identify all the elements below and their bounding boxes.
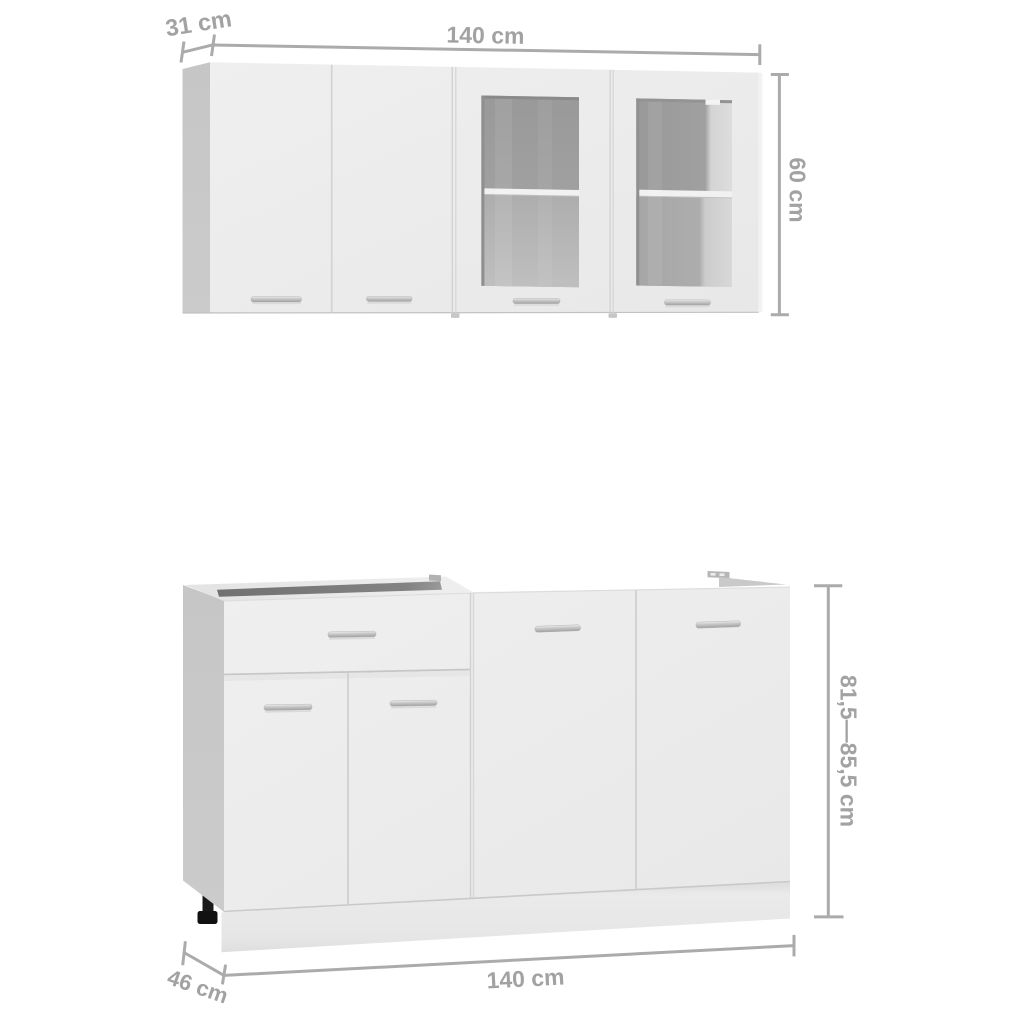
svg-text:60 cm: 60 cm	[785, 157, 811, 222]
svg-text:140 cm: 140 cm	[486, 963, 565, 993]
svg-text:81,5—85,5 cm: 81,5—85,5 cm	[836, 675, 862, 827]
svg-text:140 cm: 140 cm	[446, 22, 524, 49]
